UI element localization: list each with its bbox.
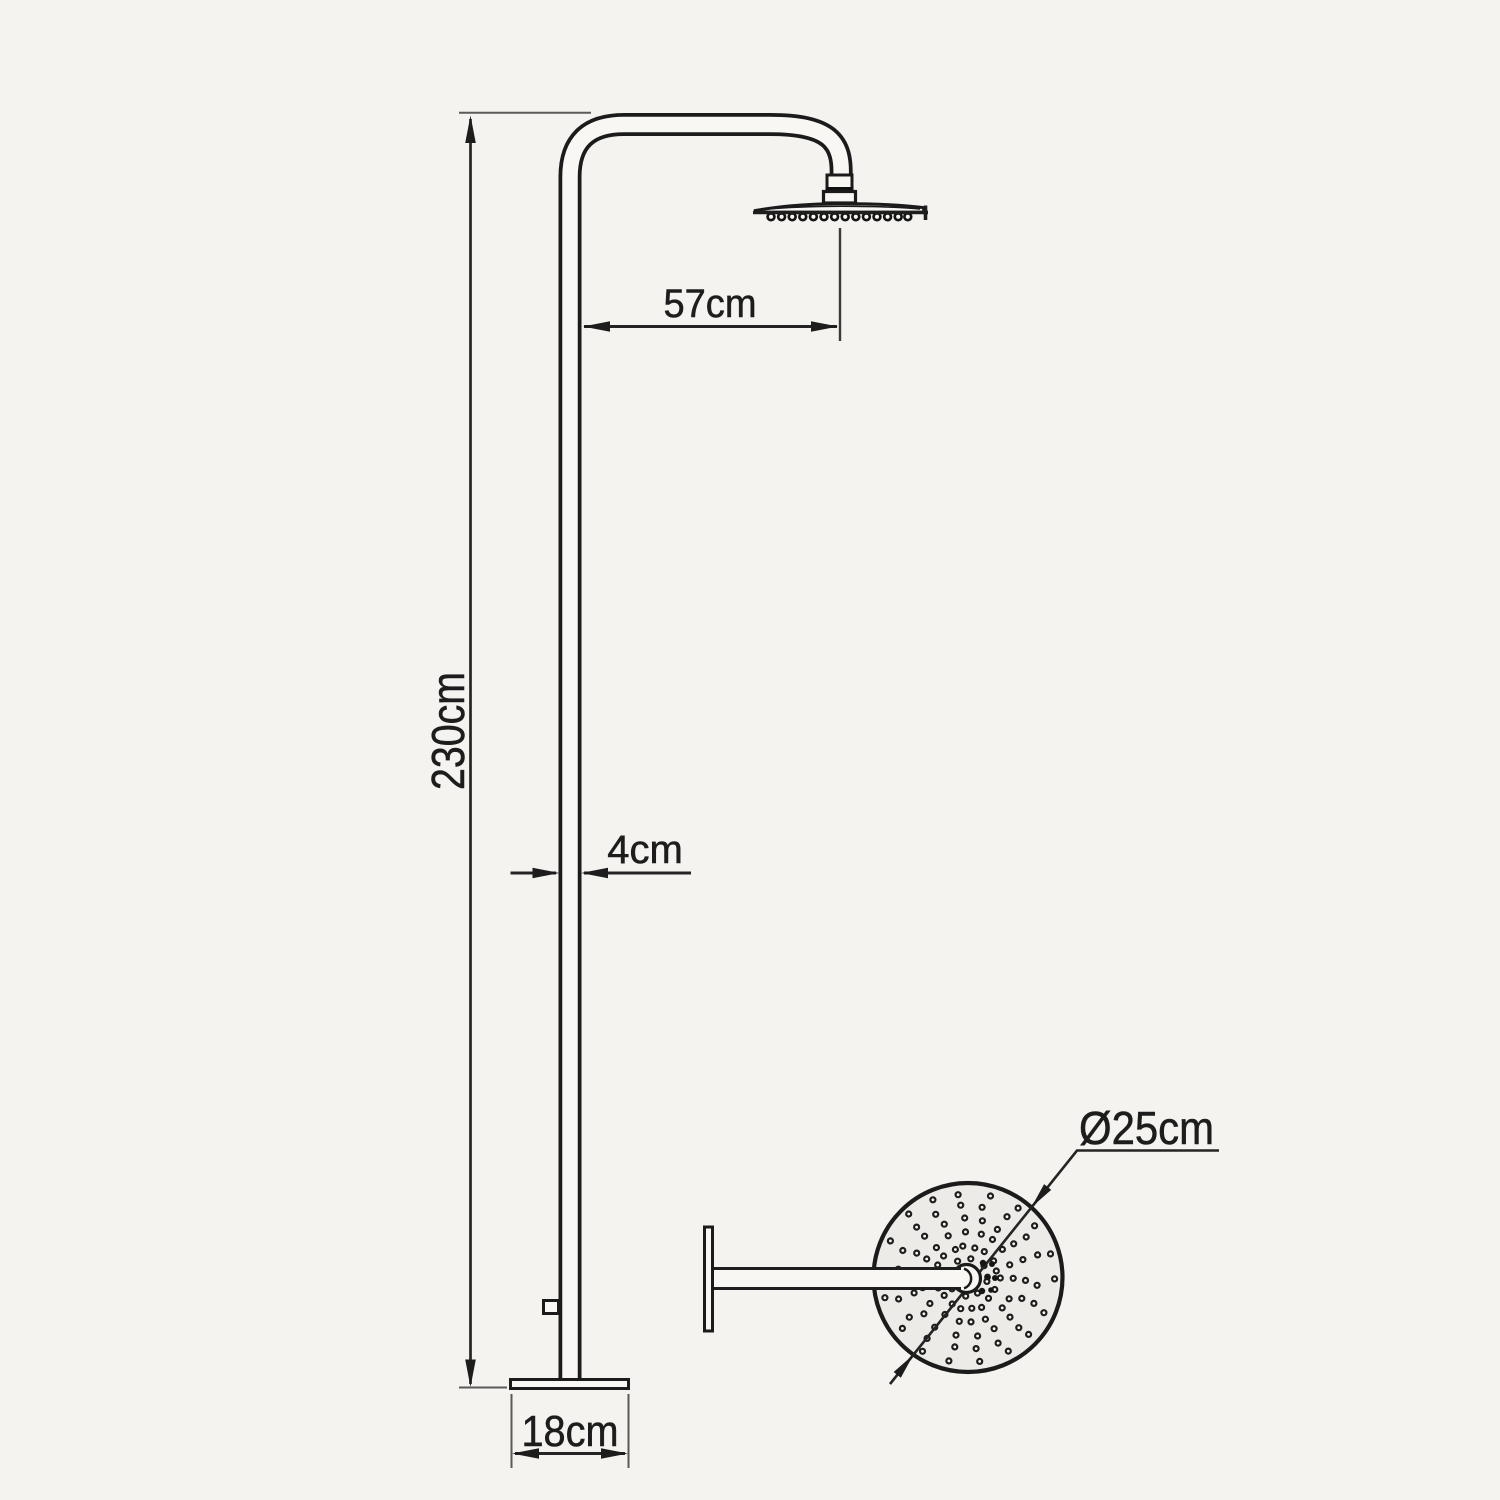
svg-text:57cm: 57cm — [664, 282, 757, 326]
svg-text:230cm: 230cm — [422, 672, 474, 790]
svg-text:18cm: 18cm — [522, 1407, 619, 1456]
svg-text:4cm: 4cm — [607, 828, 683, 872]
svg-text:Ø25cm: Ø25cm — [1079, 1102, 1214, 1154]
